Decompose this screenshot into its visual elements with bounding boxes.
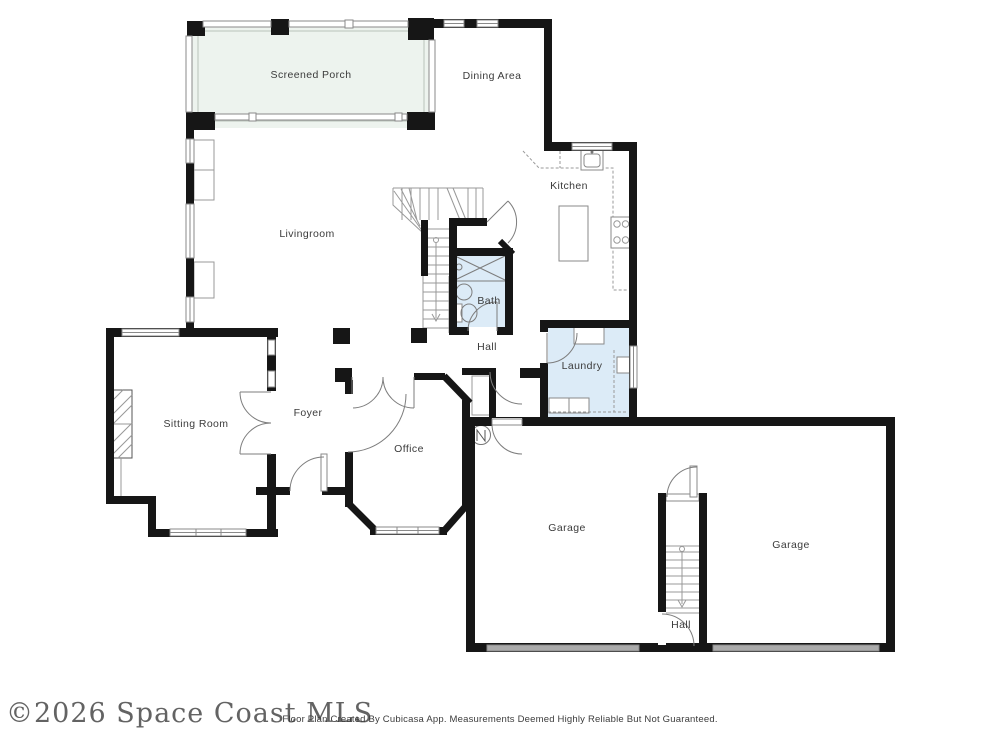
kitchen-fixtures bbox=[523, 149, 631, 290]
label-bath: Bath bbox=[477, 295, 500, 307]
window bbox=[572, 143, 612, 150]
label-sitting-room: Sitting Room bbox=[164, 418, 229, 430]
label-office: Office bbox=[394, 443, 424, 455]
garage-hall-door-leaf bbox=[690, 466, 697, 497]
window bbox=[268, 371, 275, 387]
window bbox=[122, 329, 179, 336]
label-foyer: Foyer bbox=[294, 407, 323, 419]
label-garage-right: Garage bbox=[772, 539, 809, 551]
window bbox=[376, 527, 439, 534]
label-garage-hall: Hall bbox=[671, 619, 691, 631]
laundry-cabinet bbox=[549, 398, 569, 413]
label-livingroom: Livingroom bbox=[279, 228, 334, 240]
window bbox=[268, 340, 275, 355]
garage-door-left bbox=[487, 645, 639, 651]
label-hall: Hall bbox=[477, 341, 497, 353]
floor-plan-drawing: Screened Porch Dining Area Kitchen Livin… bbox=[0, 0, 1000, 750]
room-labels: Screened Porch Dining Area Kitchen Livin… bbox=[164, 69, 810, 631]
label-dining-area: Dining Area bbox=[463, 70, 522, 82]
garage-door-right bbox=[713, 645, 879, 651]
label-laundry: Laundry bbox=[562, 360, 603, 372]
kitchen-island bbox=[559, 206, 588, 261]
window bbox=[186, 297, 194, 322]
window bbox=[477, 20, 498, 27]
laundry-appliance bbox=[617, 357, 631, 373]
label-kitchen: Kitchen bbox=[550, 180, 588, 192]
garage-hall-staircase bbox=[666, 494, 699, 613]
window bbox=[170, 529, 246, 536]
window bbox=[186, 139, 194, 163]
label-screened-porch: Screened Porch bbox=[271, 69, 352, 81]
window bbox=[630, 346, 637, 388]
front-door-leaf bbox=[321, 454, 327, 491]
window bbox=[186, 204, 194, 258]
floor-plan-page: Screened Porch Dining Area Kitchen Livin… bbox=[0, 0, 1000, 750]
living-room-builtins bbox=[194, 140, 214, 298]
label-garage-left: Garage bbox=[548, 522, 585, 534]
window bbox=[444, 20, 464, 27]
fireplace bbox=[111, 390, 132, 496]
disclaimer-text: Floor Plan Created By Cubicasa App. Meas… bbox=[0, 714, 1000, 725]
